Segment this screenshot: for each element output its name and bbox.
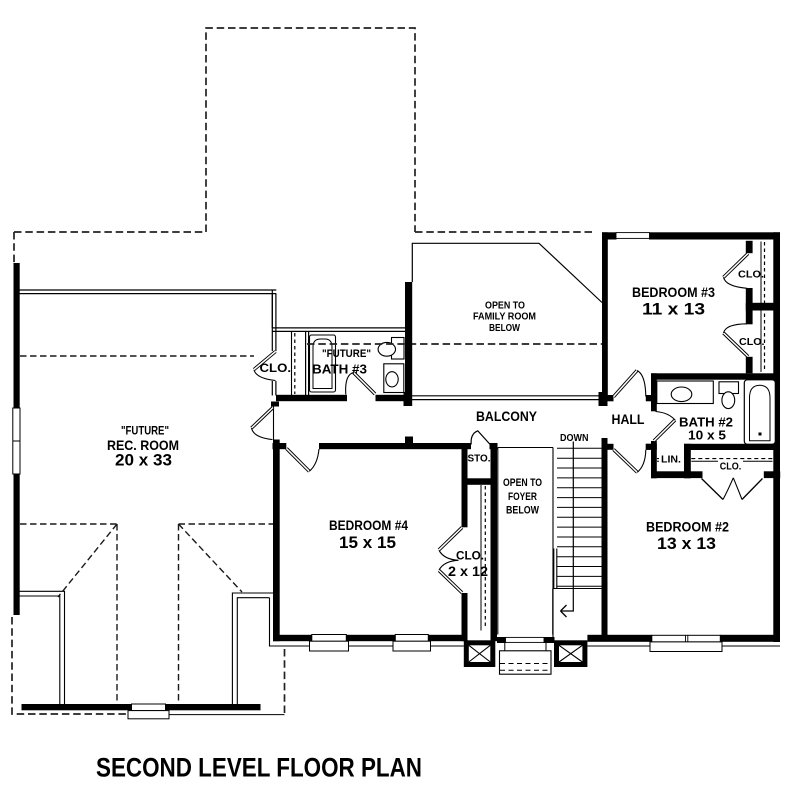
svg-text:STO.: STO. [468,454,491,465]
svg-text:CLO.: CLO. [738,269,764,281]
svg-text:FOYER: FOYER [508,491,537,503]
svg-text:11 x 13: 11 x 13 [642,301,705,319]
svg-text:SECOND LEVEL FLOOR PLAN: SECOND LEVEL FLOOR PLAN [96,753,422,783]
svg-text:BELOW: BELOW [489,322,520,334]
svg-text:BEDROOM #4: BEDROOM #4 [329,518,408,533]
svg-text:LIN.: LIN. [661,455,681,466]
svg-text:15 x 15: 15 x 15 [339,534,396,552]
svg-text:"FUTURE": "FUTURE" [322,348,371,360]
svg-text:10 x 5: 10 x 5 [688,428,726,443]
svg-text:"FUTURE": "FUTURE" [121,424,169,438]
svg-text:CLO.: CLO. [720,462,742,473]
svg-text:FAMILY ROOM: FAMILY ROOM [473,311,536,323]
svg-text:13 x 13: 13 x 13 [657,535,716,553]
svg-text:CLO.: CLO. [260,363,292,375]
svg-text:CLO.: CLO. [456,549,484,563]
svg-text:BELOW: BELOW [506,505,539,517]
svg-text:HALL: HALL [612,411,645,427]
svg-text:2 x 12: 2 x 12 [448,564,488,579]
svg-text:20 x 33: 20 x 33 [115,452,172,470]
svg-text:BEDROOM #3: BEDROOM #3 [632,285,715,300]
svg-text:BALCONY: BALCONY [476,409,537,424]
svg-text:OPEN TO: OPEN TO [503,477,542,489]
svg-text:DOWN: DOWN [560,433,589,444]
svg-text:BEDROOM #2: BEDROOM #2 [646,520,729,535]
svg-text:BATH #3: BATH #3 [312,362,367,377]
svg-text:CLO.: CLO. [739,336,765,348]
